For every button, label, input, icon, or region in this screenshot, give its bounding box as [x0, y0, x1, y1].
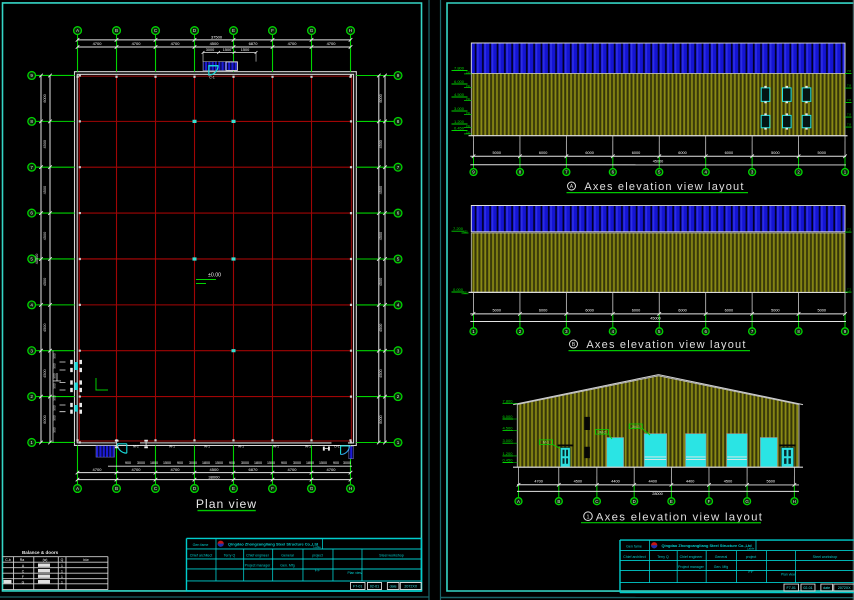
svg-text:4700: 4700 [327, 467, 337, 472]
svg-text:6: 6 [30, 211, 33, 216]
svg-text:JM-2: JM-2 [598, 430, 606, 434]
svg-text:F: F [22, 575, 24, 579]
svg-text:Chief architect: Chief architect [623, 555, 645, 559]
svg-text:G: G [310, 28, 314, 33]
svg-text:1500: 1500 [241, 48, 249, 52]
svg-text:0.450: 0.450 [502, 458, 513, 463]
svg-text:4700: 4700 [132, 467, 142, 472]
svg-text:W-1: W-1 [305, 445, 311, 449]
svg-text:1: 1 [61, 575, 63, 579]
svg-text:6000: 6000 [43, 94, 47, 102]
svg-text:1: 1 [586, 514, 589, 520]
svg-text:E: E [232, 486, 235, 491]
svg-text:F7-01: F7-01 [353, 584, 362, 588]
svg-text:project: project [312, 553, 323, 557]
svg-text:150: 150 [466, 98, 471, 101]
svg-text:C-b: C-b [5, 558, 11, 562]
svg-text:02-01: 02-01 [803, 586, 812, 590]
svg-text:1800: 1800 [254, 461, 262, 465]
svg-text:7.2: 7.2 [847, 288, 851, 292]
svg-text:H: H [793, 499, 796, 504]
svg-text:JM-3: JM-3 [632, 425, 640, 429]
svg-text:Gen fame: Gen fame [193, 543, 209, 547]
svg-text:6000: 6000 [379, 415, 383, 423]
svg-text:F: F [708, 499, 711, 504]
svg-text:5: 5 [397, 257, 400, 262]
svg-text:900: 900 [125, 461, 131, 465]
svg-text:1500: 1500 [267, 461, 275, 465]
svg-text:1: 1 [397, 440, 400, 445]
svg-text:4700: 4700 [93, 467, 103, 472]
svg-text:4: 4 [30, 303, 33, 308]
svg-text:6.000: 6.000 [454, 79, 465, 84]
svg-text:Terry Q: Terry Q [657, 555, 669, 559]
svg-text:2072XX: 2072XX [404, 584, 417, 588]
svg-text:3000: 3000 [241, 461, 249, 465]
svg-text:A: A [570, 184, 574, 190]
svg-text:6.000: 6.000 [502, 414, 513, 419]
svg-text:4500: 4500 [210, 41, 220, 46]
svg-text:2072XX: 2072XX [838, 586, 851, 590]
svg-text:4500: 4500 [574, 480, 582, 484]
svg-text:7.8: 7.8 [847, 98, 851, 102]
svg-text:date: date [823, 586, 830, 590]
svg-text:F: F [271, 28, 274, 33]
svg-text:B: B [115, 486, 118, 491]
svg-text:37500: 37500 [211, 34, 223, 39]
svg-text:7.8: 7.8 [847, 123, 851, 127]
svg-text:6000: 6000 [632, 309, 640, 313]
svg-text:Plan view: Plan view [347, 571, 362, 575]
svg-text:F7-01: F7-01 [787, 586, 796, 590]
svg-text:3000: 3000 [206, 48, 214, 52]
svg-text:4700: 4700 [132, 41, 142, 46]
svg-text:150: 150 [466, 125, 471, 128]
svg-text:1: 1 [61, 569, 63, 573]
svg-text:Axes elevation view layout: Axes elevation view layout [586, 339, 746, 351]
svg-text:6000: 6000 [379, 94, 383, 102]
svg-text:4.500: 4.500 [502, 425, 513, 430]
svg-text:6000: 6000 [539, 151, 547, 155]
svg-text:1.200: 1.200 [454, 119, 465, 124]
svg-text:1800: 1800 [202, 461, 210, 465]
svg-text:Chief architect: Chief architect [190, 553, 212, 557]
svg-text:3000: 3000 [137, 461, 145, 465]
svg-text:E: E [232, 28, 235, 33]
svg-text:5000: 5000 [818, 151, 826, 155]
svg-text:Q: Q [61, 558, 64, 562]
svg-text:C: C [595, 499, 598, 504]
svg-text:A: A [517, 499, 520, 504]
svg-text:W-1: W-1 [204, 445, 210, 449]
svg-text:1500: 1500 [215, 461, 223, 465]
svg-text:(w): (w) [43, 558, 48, 562]
svg-text:W-1: W-1 [169, 445, 175, 449]
svg-text:5600: 5600 [767, 480, 775, 484]
svg-text:7.8: 7.8 [847, 113, 851, 117]
svg-text:1: 1 [61, 564, 63, 568]
svg-text:3: 3 [397, 348, 400, 353]
svg-text:5000: 5000 [818, 309, 826, 313]
svg-text:Axes elevation view layout: Axes elevation view layout [596, 511, 763, 523]
svg-text:6000: 6000 [678, 151, 686, 155]
svg-text:45000: 45000 [653, 160, 664, 164]
svg-text:45000: 45000 [650, 317, 661, 321]
svg-text:0.450: 0.450 [454, 126, 465, 131]
svg-text:900: 900 [229, 461, 235, 465]
svg-text:Chief engineer: Chief engineer [246, 553, 270, 557]
svg-text:3000: 3000 [343, 461, 351, 465]
svg-text:E: E [670, 499, 673, 504]
svg-text:6000: 6000 [585, 151, 593, 155]
svg-text:1800: 1800 [150, 461, 158, 465]
svg-text:02-01: 02-01 [370, 584, 379, 588]
svg-text:5000: 5000 [771, 309, 779, 313]
svg-text:G: G [310, 486, 314, 491]
svg-text:5000: 5000 [492, 309, 500, 313]
svg-text:4400: 4400 [611, 480, 619, 484]
svg-text:6870: 6870 [249, 467, 259, 472]
svg-text:G: G [745, 499, 749, 504]
svg-text:900: 900 [333, 461, 339, 465]
svg-text:4500: 4500 [379, 140, 383, 148]
svg-text:1800: 1800 [306, 461, 314, 465]
svg-text:3000: 3000 [189, 461, 197, 465]
svg-text:Lable: Lable [313, 545, 321, 549]
svg-text:6000: 6000 [725, 309, 733, 313]
svg-text:3000: 3000 [293, 461, 301, 465]
svg-text:W-1: W-1 [273, 445, 279, 449]
svg-text:Ra: Ra [20, 558, 24, 562]
svg-text:900: 900 [177, 461, 183, 465]
svg-text:General: General [715, 555, 728, 559]
svg-text:C-1: C-1 [209, 76, 215, 80]
svg-text:4400: 4400 [649, 480, 657, 484]
svg-text:6000: 6000 [632, 151, 640, 155]
svg-text:5000: 5000 [771, 151, 779, 155]
svg-text:6000: 6000 [43, 415, 47, 423]
svg-text:4500: 4500 [43, 324, 47, 332]
svg-text:4700: 4700 [327, 41, 337, 46]
svg-text:4700: 4700 [534, 480, 542, 484]
svg-text:28000: 28000 [652, 492, 663, 496]
svg-text:8: 8 [397, 119, 400, 124]
svg-text:150: 150 [464, 291, 469, 294]
svg-text:4500: 4500 [724, 480, 732, 484]
svg-text:B: B [572, 342, 576, 348]
svg-text:FF: FF [315, 567, 321, 572]
svg-text:6870: 6870 [249, 41, 259, 46]
svg-text:7.8: 7.8 [847, 69, 851, 73]
svg-text:0.000: 0.000 [453, 287, 464, 292]
svg-text:b/w: b/w [83, 558, 89, 562]
svg-text:4500: 4500 [379, 232, 383, 240]
svg-text:6000: 6000 [678, 309, 686, 313]
svg-text:4500: 4500 [210, 467, 220, 472]
svg-text:6000: 6000 [725, 151, 733, 155]
svg-text:4500: 4500 [43, 278, 47, 286]
svg-text:Steel workshop: Steel workshop [813, 555, 838, 559]
svg-text:Project manager: Project manager [245, 563, 272, 567]
svg-text:40500: 40500 [35, 254, 39, 265]
svg-text:4700: 4700 [171, 41, 181, 46]
svg-text:7: 7 [30, 165, 33, 170]
svg-text:Plan view: Plan view [781, 573, 796, 577]
svg-text:4700: 4700 [288, 41, 298, 46]
svg-text:1500: 1500 [319, 461, 327, 465]
svg-text:4500: 4500 [43, 369, 47, 377]
svg-text:Qingdao Zhongcangliang Steel S: Qingdao Zhongcangliang Steel Structure C… [661, 543, 752, 548]
svg-text:9: 9 [30, 73, 33, 78]
svg-text:Qingdao Zhongcangliang Steel S: Qingdao Zhongcangliang Steel Structure C… [228, 541, 319, 546]
svg-text:1500: 1500 [163, 461, 171, 465]
svg-text:H: H [349, 28, 352, 33]
svg-text:2: 2 [397, 394, 400, 399]
svg-text:1: 1 [30, 440, 33, 445]
svg-text:1: 1 [61, 580, 63, 584]
svg-text:150: 150 [466, 131, 471, 134]
svg-text:Terry Q: Terry Q [224, 553, 236, 557]
svg-text:3.000: 3.000 [502, 438, 513, 443]
svg-text:4500: 4500 [43, 186, 47, 194]
svg-text:150: 150 [466, 112, 471, 115]
svg-text:Lable: Lable [747, 546, 755, 550]
svg-text:7: 7 [397, 165, 400, 170]
svg-text:B: B [557, 499, 560, 504]
svg-text:Plan view: Plan view [196, 497, 257, 511]
svg-text:date: date [390, 584, 397, 588]
svg-text:4700: 4700 [171, 467, 181, 472]
svg-text:5: 5 [30, 257, 33, 262]
svg-text:Gen. Mfg: Gen. Mfg [280, 563, 294, 567]
svg-text:7.200: 7.200 [453, 226, 464, 231]
svg-text:6: 6 [397, 211, 400, 216]
svg-text:4700: 4700 [288, 467, 298, 472]
svg-text:F: F [271, 486, 274, 491]
svg-text:150: 150 [466, 85, 471, 88]
svg-text:Balance & doors: Balance & doors [22, 550, 59, 555]
svg-text:150: 150 [466, 71, 471, 74]
svg-text:6000: 6000 [585, 309, 593, 313]
svg-text:4500: 4500 [43, 140, 47, 148]
svg-text:1.200: 1.200 [502, 451, 513, 456]
svg-text:900: 900 [281, 461, 287, 465]
svg-text:5000: 5000 [493, 151, 501, 155]
svg-text:D-1: D-1 [334, 445, 339, 449]
svg-text:3: 3 [30, 348, 33, 353]
svg-text:6000: 6000 [539, 309, 547, 313]
svg-text:4500: 4500 [379, 278, 383, 286]
svg-text:FF: FF [748, 569, 754, 574]
svg-text:2: 2 [30, 394, 33, 399]
svg-text:Gen fame: Gen fame [626, 545, 642, 549]
svg-text:7.800: 7.800 [502, 398, 513, 403]
svg-text:8: 8 [30, 119, 33, 124]
svg-text:Steel workshop: Steel workshop [379, 553, 404, 557]
svg-text:M-1: M-1 [543, 441, 549, 445]
svg-text:±0.00: ±0.00 [208, 272, 221, 278]
svg-text:7.800: 7.800 [454, 66, 465, 71]
svg-text:4500: 4500 [379, 369, 383, 377]
svg-text:M-2: M-2 [133, 445, 139, 449]
svg-text:W-1: W-1 [238, 445, 244, 449]
svg-text:7.8: 7.8 [847, 84, 851, 88]
svg-text:7.2: 7.2 [847, 228, 851, 232]
svg-text:4: 4 [397, 303, 400, 308]
svg-text:4500: 4500 [379, 324, 383, 332]
svg-text:project: project [746, 555, 757, 559]
svg-text:1500: 1500 [223, 48, 231, 52]
svg-text:General: General [281, 553, 294, 557]
svg-text:150: 150 [464, 231, 469, 234]
svg-text:D: D [633, 499, 636, 504]
svg-text:Project manager: Project manager [678, 565, 705, 569]
svg-text:3.000: 3.000 [454, 106, 465, 111]
svg-text:B: B [115, 28, 118, 33]
svg-text:Axes elevation view layout: Axes elevation view layout [584, 181, 744, 193]
svg-text:G: G [22, 580, 25, 584]
svg-text:Chief engineer: Chief engineer [680, 555, 704, 559]
svg-text:9: 9 [397, 73, 400, 78]
svg-text:4700: 4700 [93, 41, 103, 46]
svg-text:38000: 38000 [208, 474, 220, 479]
svg-text:4400: 4400 [686, 480, 694, 484]
svg-text:4500: 4500 [379, 186, 383, 194]
svg-text:4.500: 4.500 [454, 92, 465, 97]
svg-text:4500: 4500 [43, 232, 47, 240]
svg-text:Gen. Mfg: Gen. Mfg [714, 565, 728, 569]
svg-text:H: H [349, 486, 352, 491]
